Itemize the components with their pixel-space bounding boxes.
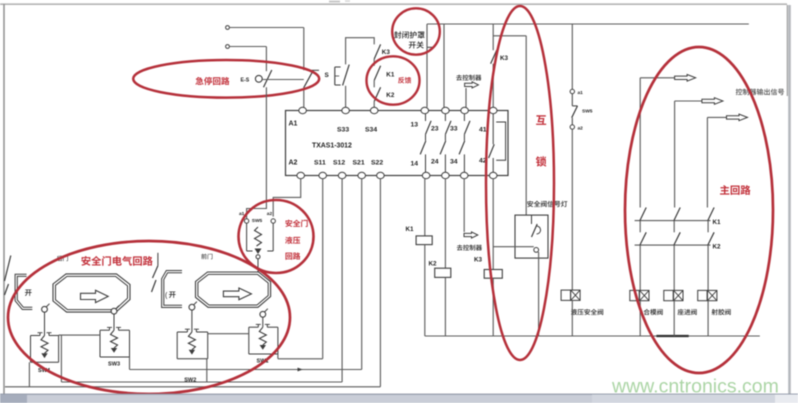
svg-text:34: 34 bbox=[450, 159, 458, 166]
svg-text:www.cntronics.com: www.cntronics.com bbox=[611, 376, 779, 398]
svg-text:24: 24 bbox=[431, 159, 439, 166]
svg-text:K1: K1 bbox=[386, 71, 395, 78]
svg-text:K2: K2 bbox=[386, 92, 395, 99]
svg-text:SW5: SW5 bbox=[582, 109, 593, 115]
svg-text:33: 33 bbox=[450, 126, 458, 133]
svg-text:SW5: SW5 bbox=[252, 218, 263, 224]
svg-text:S11: S11 bbox=[314, 160, 326, 167]
svg-text:SW3: SW3 bbox=[108, 362, 120, 368]
svg-text:A1: A1 bbox=[289, 121, 298, 128]
svg-text:14: 14 bbox=[411, 161, 419, 168]
svg-text:E-S: E-S bbox=[241, 78, 250, 84]
svg-text:S: S bbox=[325, 72, 330, 79]
svg-text:S33: S33 bbox=[337, 127, 349, 134]
svg-text:S22: S22 bbox=[371, 160, 383, 167]
svg-text:a1: a1 bbox=[578, 90, 584, 96]
svg-text:41: 41 bbox=[479, 127, 487, 134]
svg-text:K2: K2 bbox=[713, 244, 722, 251]
svg-text:K3: K3 bbox=[474, 257, 483, 264]
svg-text:S34: S34 bbox=[365, 127, 377, 134]
svg-text:K2: K2 bbox=[429, 261, 438, 268]
svg-text:S21: S21 bbox=[353, 160, 365, 167]
svg-text:A2: A2 bbox=[289, 160, 298, 167]
svg-text:a2: a2 bbox=[267, 211, 273, 217]
svg-text:a2: a2 bbox=[578, 126, 584, 132]
svg-text:K3: K3 bbox=[500, 55, 509, 62]
svg-text:K1: K1 bbox=[406, 226, 415, 233]
svg-text:23: 23 bbox=[431, 126, 439, 133]
svg-text:13: 13 bbox=[411, 122, 419, 129]
svg-text:K3: K3 bbox=[382, 49, 391, 56]
svg-text:TXAS1-3012: TXAS1-3012 bbox=[312, 143, 352, 150]
svg-text:SW2: SW2 bbox=[184, 378, 196, 384]
svg-text:K1: K1 bbox=[713, 219, 722, 226]
svg-text:S12: S12 bbox=[333, 160, 345, 167]
